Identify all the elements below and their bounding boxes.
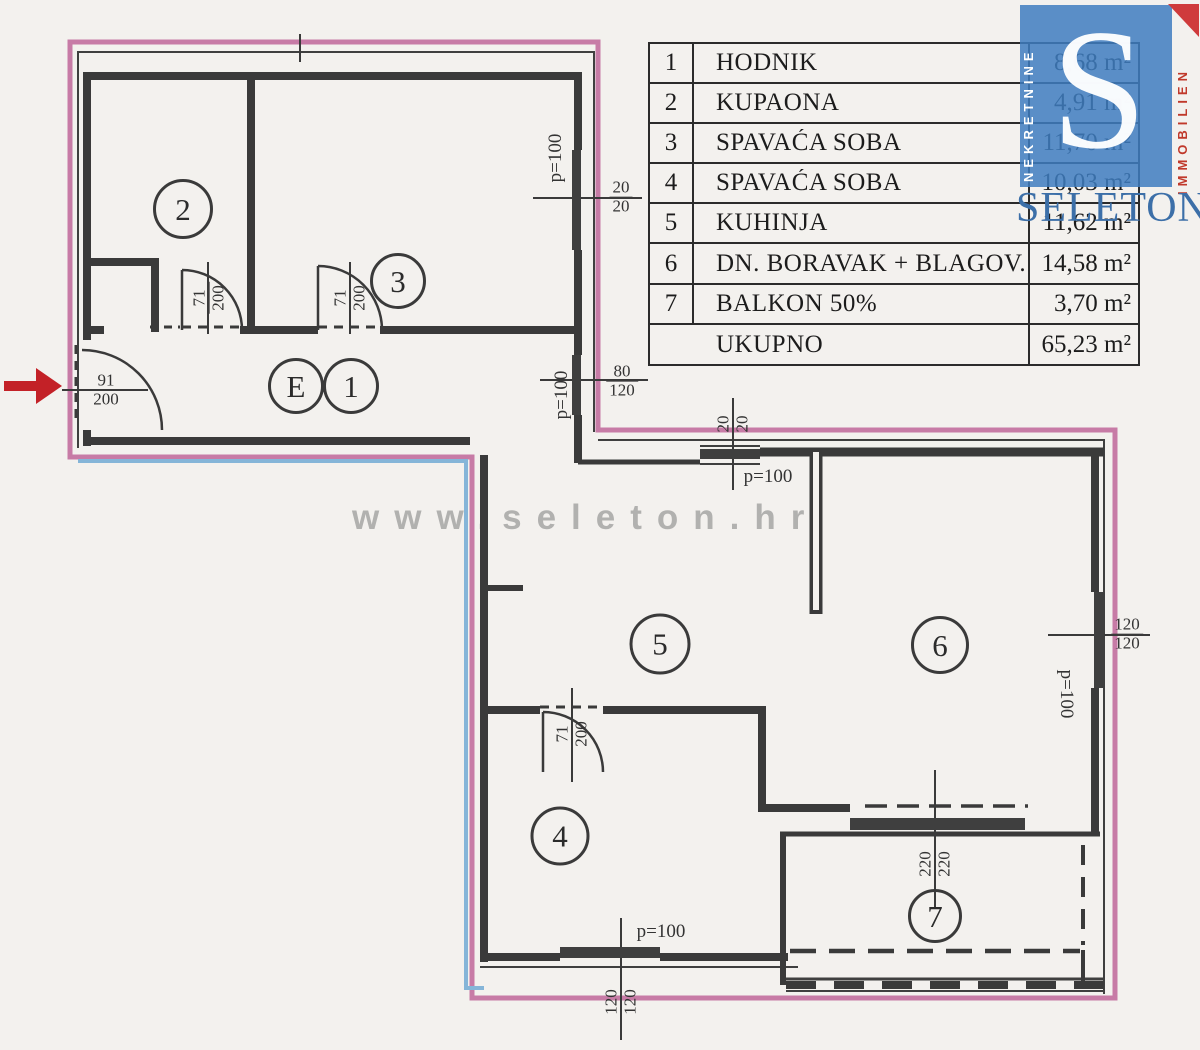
- room-name: SPAVAĆA SOBA: [694, 129, 1028, 157]
- logo-red-triangle-icon: [1168, 4, 1199, 37]
- dim-top: 120: [1111, 616, 1143, 635]
- dim-door-room2: 71200: [191, 282, 228, 314]
- room-name: UKUPNO: [694, 331, 1028, 359]
- room-name: KUPAONA: [694, 89, 1028, 117]
- room-label-7: 7: [908, 889, 962, 943]
- room-label-1: 1: [323, 358, 379, 414]
- dim-bottom: 200: [210, 282, 228, 314]
- room-label-text: E: [287, 371, 306, 402]
- dim-entrance-door: 91200: [90, 372, 122, 409]
- room-label-text: 1: [343, 371, 359, 402]
- row-number: 4: [650, 164, 694, 202]
- room-label-6: 6: [911, 616, 969, 674]
- dim-top: 80: [606, 363, 638, 382]
- parapet-label: p=100: [637, 921, 686, 943]
- room-area: 3,70 m²: [1028, 285, 1138, 323]
- dim-top: 71: [191, 282, 210, 314]
- logo-brand-name: SELETON: [1016, 184, 1198, 232]
- door-arcs: [82, 266, 603, 772]
- room-label-5: 5: [630, 614, 691, 675]
- row-number: 2: [650, 84, 694, 122]
- table-row-total: UKUPNO 65,23 m²: [650, 325, 1138, 365]
- room-area: 14,58 m²: [1028, 244, 1138, 282]
- logo-immobilien-text: IMMOBILIEN: [1175, 37, 1190, 195]
- dim-bottom: 120: [622, 986, 640, 1018]
- room-label-2: 2: [153, 179, 213, 239]
- dim-window-corridor: 2020: [715, 413, 752, 436]
- parapet-label: p=100: [545, 134, 567, 183]
- room-label-text: 6: [932, 630, 948, 661]
- dim-window-right: 120120: [1111, 616, 1143, 653]
- table-row: 7 BALKON 50% 3,70 m²: [650, 285, 1138, 325]
- room-label-e: E: [268, 358, 324, 414]
- dim-bottom: 200: [573, 718, 591, 750]
- parapet-label: p=100: [551, 371, 573, 420]
- seleton-logo: NEKRETNINE S IMMOBILIEN SELETON: [1012, 2, 1200, 234]
- room-name: SPAVAĆA SOBA: [694, 169, 1028, 197]
- room-label-text: 2: [175, 194, 191, 225]
- dim-bottom: 20: [610, 198, 633, 216]
- room-name: DN. BORAVAK + BLAGOV.: [694, 250, 1028, 278]
- dim-top: 71: [332, 282, 351, 314]
- dim-bottom: 220: [936, 848, 954, 880]
- row-number: 5: [650, 204, 694, 242]
- dim-top: 91: [90, 372, 122, 391]
- dim-window-bottom: 120120: [603, 986, 640, 1018]
- dim-top: 71: [554, 718, 573, 750]
- dim-top: 220: [917, 848, 936, 880]
- room-area: 65,23 m²: [1028, 325, 1138, 365]
- dim-bottom: 200: [351, 282, 369, 314]
- row-number: 1: [650, 44, 694, 82]
- row-number: [650, 325, 694, 365]
- room-label-4: 4: [531, 807, 590, 866]
- dim-door-room3: 71200: [332, 282, 369, 314]
- dim-top: 20: [715, 413, 734, 436]
- dim-top: 20: [610, 179, 633, 198]
- dim-bottom: 20: [734, 413, 752, 436]
- table-row: 6 DN. BORAVAK + BLAGOV. 14,58 m²: [650, 244, 1138, 284]
- logo-s-letter: S: [1034, 0, 1164, 190]
- dim-bottom: 120: [606, 382, 638, 400]
- dim-top: 120: [603, 986, 622, 1018]
- entrance-arrow-icon: [4, 368, 62, 404]
- room-name: HODNIK: [694, 49, 1028, 77]
- dim-bottom: 120: [1111, 635, 1143, 653]
- room-label-3: 3: [370, 253, 426, 309]
- dim-window-hodnik: 80120: [606, 363, 638, 400]
- parapet-label: p=100: [744, 466, 793, 488]
- row-number: 7: [650, 285, 694, 323]
- row-number: 3: [650, 124, 694, 162]
- boundary-blue: [78, 461, 484, 988]
- dim-door-room4: 71200: [554, 718, 591, 750]
- room-label-text: 4: [552, 821, 568, 852]
- room-name: KUHINJA: [694, 209, 1028, 237]
- scanned-floorplan-page: www.seleton.hr: [0, 0, 1200, 1050]
- room-label-text: 3: [390, 266, 406, 297]
- dim-window-topright: 2020: [610, 179, 633, 216]
- dim-balcony-door: 220220: [917, 848, 954, 880]
- room-name: BALKON 50%: [694, 290, 1028, 318]
- room-label-text: 7: [927, 901, 943, 932]
- parapet-label: p=100: [1055, 670, 1077, 719]
- dim-bottom: 200: [90, 391, 122, 409]
- room-label-text: 5: [652, 629, 668, 660]
- row-number: 6: [650, 244, 694, 282]
